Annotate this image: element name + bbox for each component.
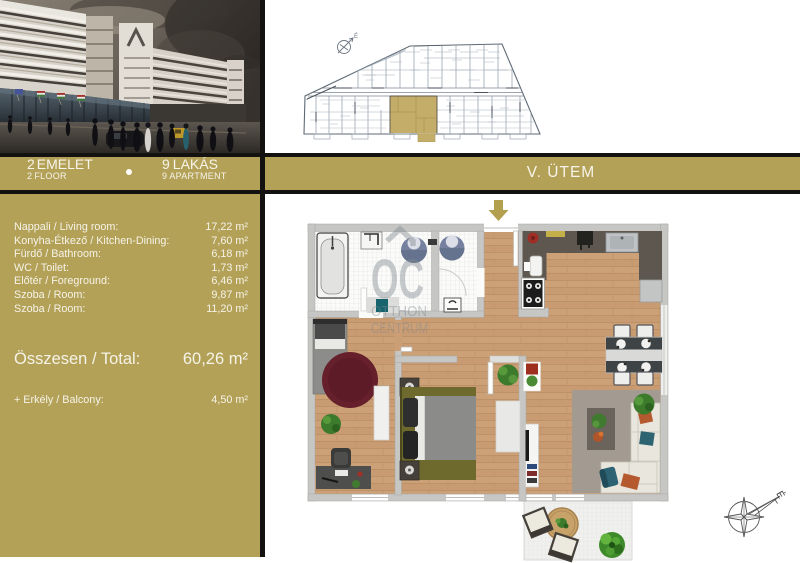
svg-text:OTTHON: OTTHON bbox=[371, 303, 427, 320]
svg-text:OC: OC bbox=[371, 247, 424, 310]
svg-text:CENTRUM: CENTRUM bbox=[371, 320, 428, 337]
svg-text:É: É bbox=[354, 33, 358, 40]
